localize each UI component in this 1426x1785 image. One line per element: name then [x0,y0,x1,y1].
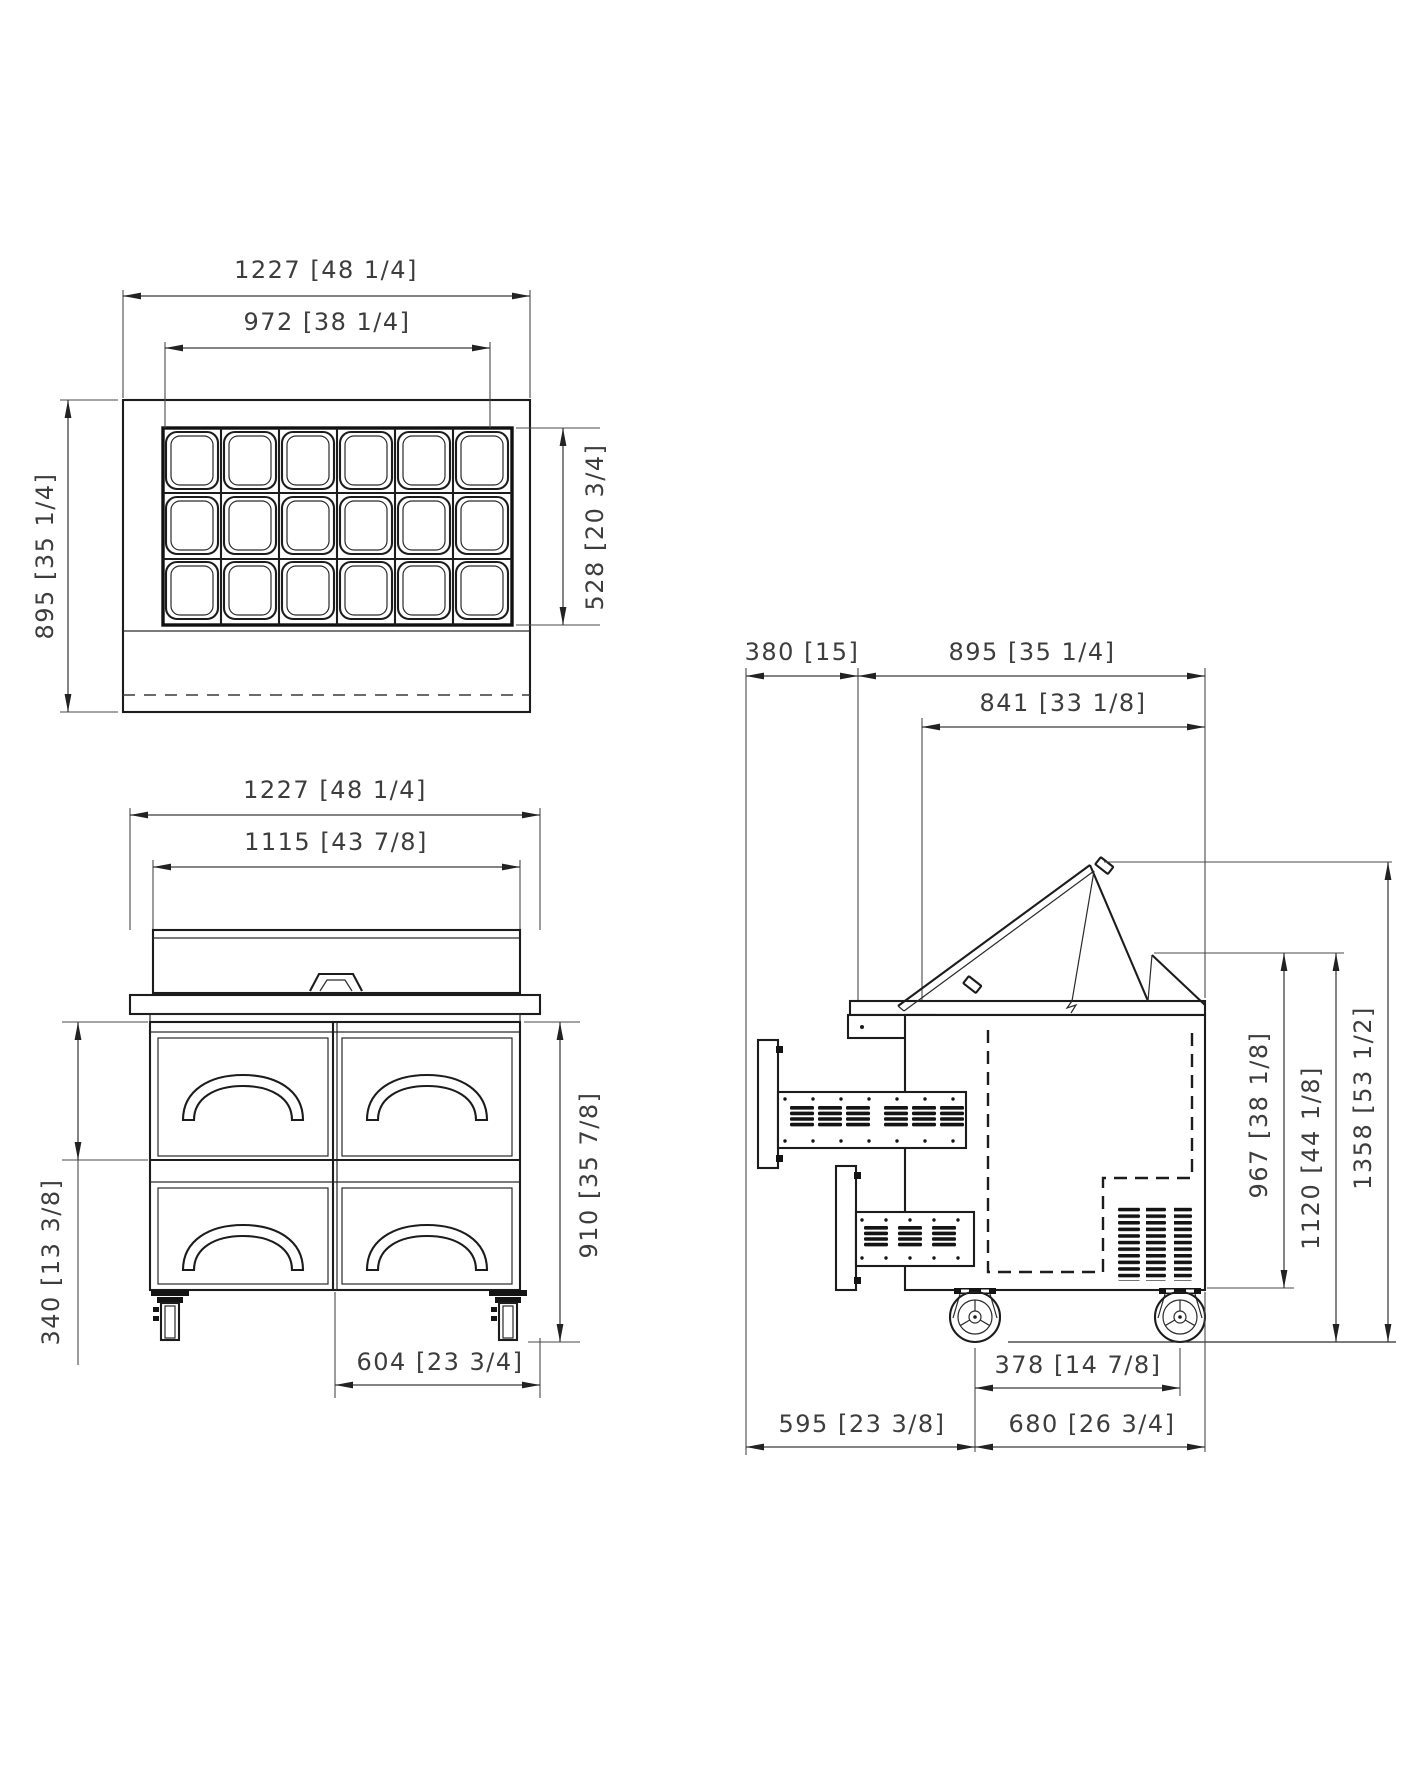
dim-front-caster-span: 604 [23 3/4] [357,1348,524,1376]
dim-top-pan-depth: 528 [20 3/4] [581,444,609,611]
technical-drawing: 1227 [48 1/4] 972 [38 1/4] 895 [35 1/4] … [0,0,1426,1785]
dim-side-open-lid-height: 1358 [53 1/2] [1349,1006,1377,1190]
dim-side-rail-height: 967 [38 1/8] [1245,1032,1273,1199]
dim-side-closed-lid-height: 1120 [44 1/8] [1297,1066,1325,1250]
dim-front-overall-width: 1227 [48 1/4] [243,776,427,804]
open-lid[interactable] [898,857,1205,1013]
lid-knob [1095,857,1113,874]
side-view: 380 [15] 895 [35 1/4] 841 [33 1/8] [745,638,1396,1455]
lid-handle [310,974,362,991]
dim-top-overall-depth: 895 [35 1/4] [31,473,59,640]
pan-grid [163,428,512,625]
dim-side-caster-span: 378 [14 7/8] [995,1351,1162,1379]
dim-side-rear-clearance: 380 [15] [745,638,860,666]
worktop [130,995,540,1014]
dim-side-base-depth: 680 [26 3/4] [1009,1410,1176,1438]
dim-side-rear-span: 595 [23 3/8] [779,1410,946,1438]
dim-front-hood-width: 1115 [43 7/8] [244,828,428,856]
dim-front-drawer-height: 340 [13 3/8] [37,1179,65,1346]
dim-side-overall-depth: 895 [35 1/4] [949,638,1116,666]
top-view: 1227 [48 1/4] 972 [38 1/4] 895 [35 1/4] … [31,256,609,712]
dim-top-overall-width: 1227 [48 1/4] [234,256,418,284]
glass-hood [153,930,520,993]
condenser-coil [1118,1205,1140,1281]
front-view: 1227 [48 1/4] 1115 [43 7/8] [37,776,603,1398]
dim-side-hood-depth: 841 [33 1/8] [980,689,1147,717]
dim-front-work-height: 910 [35 7/8] [575,1092,603,1259]
lid-knob [963,976,981,993]
dim-top-pan-width: 972 [38 1/4] [244,308,411,336]
drawing-page: 1227 [48 1/4] 972 [38 1/4] 895 [35 1/4] … [0,0,1426,1785]
